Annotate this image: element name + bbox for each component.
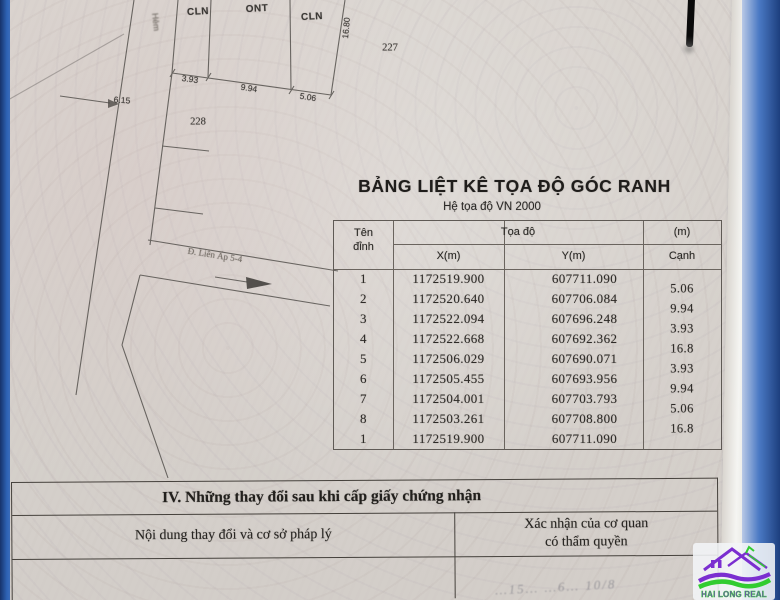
cell-y: 607706.084 [504, 291, 643, 307]
cell-id: 7 [334, 391, 393, 407]
header-ten: Tên [334, 227, 393, 241]
authority-line2: có thẩm quyền [545, 533, 628, 552]
cell-x: 1172503.261 [393, 411, 504, 427]
cell-y: 607711.090 [504, 271, 643, 287]
cell-x: 1172519.900 [393, 271, 504, 287]
edge-length-value: 5.06 [643, 282, 721, 297]
logo-text: HAI LONG REAL [701, 590, 767, 599]
header-m: (m) [643, 226, 721, 240]
header-y: Y(m) [504, 250, 643, 264]
logo-chimney-icon [711, 560, 715, 568]
cell-id: 1 [334, 431, 393, 447]
dim-label-1680: 16.80 [340, 17, 352, 39]
header-dinh: đỉnh [334, 241, 393, 255]
logo-chimney-icon [718, 560, 722, 568]
authority-line1: Xác nhận của cơ quan [524, 515, 648, 534]
edge-length-value: 5.06 [643, 402, 721, 417]
logo-purple-wave-icon [699, 574, 770, 581]
cell-id: 8 [334, 411, 393, 427]
logo-flag-icon [746, 547, 754, 553]
header-canh: Cạnh [643, 250, 721, 264]
cell-x: 1172505.455 [393, 371, 504, 387]
header-toa-do: Tọa độ [393, 226, 643, 240]
cell-id: 2 [334, 291, 393, 307]
cell-x: 1172522.094 [393, 311, 504, 327]
edge-length-value: 9.94 [643, 382, 721, 397]
dim-label-393: 3.93 [181, 73, 199, 85]
logo-green-wave-icon [699, 580, 770, 587]
page-title: BẢNG LIỆT KÊ TỌA ĐỘ GÓC RANH [342, 176, 687, 197]
cell-id: 3 [334, 311, 393, 327]
cell-y: 607703.793 [504, 391, 643, 407]
cell-x: 1172520.640 [393, 291, 504, 307]
cell-x: 1172504.001 [393, 391, 504, 407]
cell-id: 4 [334, 331, 393, 347]
dim-label-615: 6.15 [113, 94, 130, 105]
edges-overlay: 5.069.943.9316.83.939.945.0616.8 [643, 269, 721, 449]
cell-id: 1 [334, 271, 393, 287]
cell-x: 1172519.900 [393, 431, 504, 447]
edge-length-value: 16.8 [643, 342, 721, 357]
cell-y: 607690.071 [504, 351, 643, 367]
table-hline [393, 244, 721, 245]
authority-confirm-header: Xác nhận của cơ quan có thẩm quyền [455, 511, 717, 557]
cell-y: 607708.800 [504, 411, 643, 427]
header-ten-dinh: Tên đỉnh [334, 227, 393, 255]
logo-graphic: HAI LONG REAL [693, 543, 775, 600]
scan-border-right [742, 0, 780, 600]
cell-y: 607696.248 [504, 311, 643, 327]
page-subtitle: Hệ tọa độ VN 2000 [342, 201, 642, 213]
section-iv-heading: IV. Những thay đổi sau khi cấp giấy chứn… [12, 479, 717, 515]
header-x: X(m) [393, 250, 504, 264]
scanned-document: CLN ONT CLN 3.93 9.94 5.06 16.80 227 228… [0, 0, 780, 600]
parcel-label-cln1: CLN [187, 6, 210, 18]
edge-length-value: 9.94 [643, 302, 721, 317]
change-content-header: Nội dung thay đổi và cơ sở pháp lý [12, 512, 454, 559]
parcel-label-cln2: CLN [301, 11, 324, 23]
edge-length-value: 3.93 [643, 362, 721, 377]
lot-number-228: 228 [190, 117, 206, 128]
alley-label: Hẻm [150, 13, 162, 32]
cell-y: 607692.362 [504, 331, 643, 347]
parcel-label-ont: ONT [245, 3, 268, 15]
cell-id: 6 [334, 371, 393, 387]
cell-y: 607711.090 [504, 431, 643, 447]
cell-id: 5 [334, 351, 393, 367]
lot-number-227: 227 [382, 43, 398, 54]
cell-x: 1172506.029 [393, 351, 504, 367]
hai-long-real-logo: HAI LONG REAL [693, 543, 775, 600]
coordinate-table: Tên đỉnh Tọa độ X(m) Y(m) (m) Cạnh 11172… [333, 220, 722, 450]
edge-length-value: 16.8 [643, 422, 721, 437]
edge-length-value: 3.93 [643, 322, 721, 337]
scan-border-left [0, 0, 10, 600]
cell-y: 607693.956 [504, 371, 643, 387]
cell-x: 1172522.668 [393, 331, 504, 347]
